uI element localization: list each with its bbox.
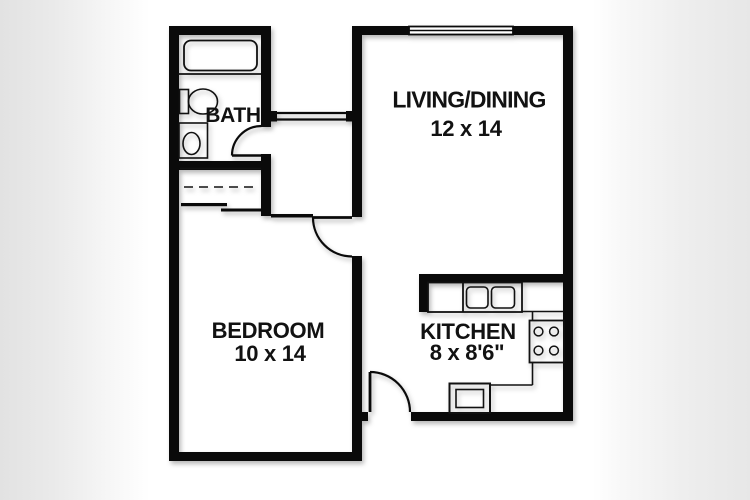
bath-door-swing-arc [232, 126, 262, 156]
bath-fixtures [178, 41, 261, 159]
window-living-top [409, 27, 513, 35]
window-hall-passthrough [271, 111, 353, 122]
stove-icon [530, 321, 565, 363]
bedroom-door-swing-arc [313, 218, 352, 257]
bath-label: BATH [205, 104, 261, 128]
entry-door-swing-arc [370, 372, 410, 412]
central-wall-lower [352, 256, 362, 461]
closet-sliding-door-right [221, 209, 264, 212]
burner-top-right-icon [550, 327, 559, 336]
sink-bowl-left-icon [467, 287, 489, 308]
kitchen-dimensions: 8 x 8'6" [430, 340, 504, 366]
kitchen-top-wall [419, 274, 564, 283]
floor-plan-image: BATH LIVING/DINING 12 x 14 BEDROOM 10 x … [0, 0, 750, 500]
sink-bowl-right-icon [492, 287, 515, 308]
closet-sliding-door-left [181, 203, 227, 206]
left-wall [169, 26, 179, 461]
toilet-tank-icon [180, 90, 189, 114]
sink-basin-icon [183, 133, 200, 155]
bathtub-icon [184, 41, 257, 71]
bath-door [232, 126, 262, 156]
oven-inner-icon [456, 390, 484, 408]
living-dining-label: LIVING/DINING [392, 87, 545, 114]
burner-top-left-icon [534, 327, 543, 336]
kitchen-top-wall-stub [419, 274, 428, 312]
floor-plan-drawing [0, 0, 750, 500]
entry-door [370, 372, 410, 412]
living-dining-dimensions: 12 x 14 [430, 116, 501, 142]
central-wall-upper [352, 26, 362, 217]
bedroom-door [313, 218, 352, 257]
hall-half-wall [271, 214, 313, 218]
bedroom-dimensions: 10 x 14 [234, 341, 305, 367]
burner-bottom-left-icon [534, 346, 543, 355]
kitchen-bottom-wall-stub [352, 412, 368, 421]
bedroom-bottom-wall [169, 452, 362, 461]
bath-right-wall [261, 26, 271, 127]
kitchen-bottom-wall [411, 412, 573, 421]
burner-bottom-right-icon [550, 346, 559, 355]
closet [180, 169, 264, 212]
bath-top-wall [169, 26, 271, 35]
